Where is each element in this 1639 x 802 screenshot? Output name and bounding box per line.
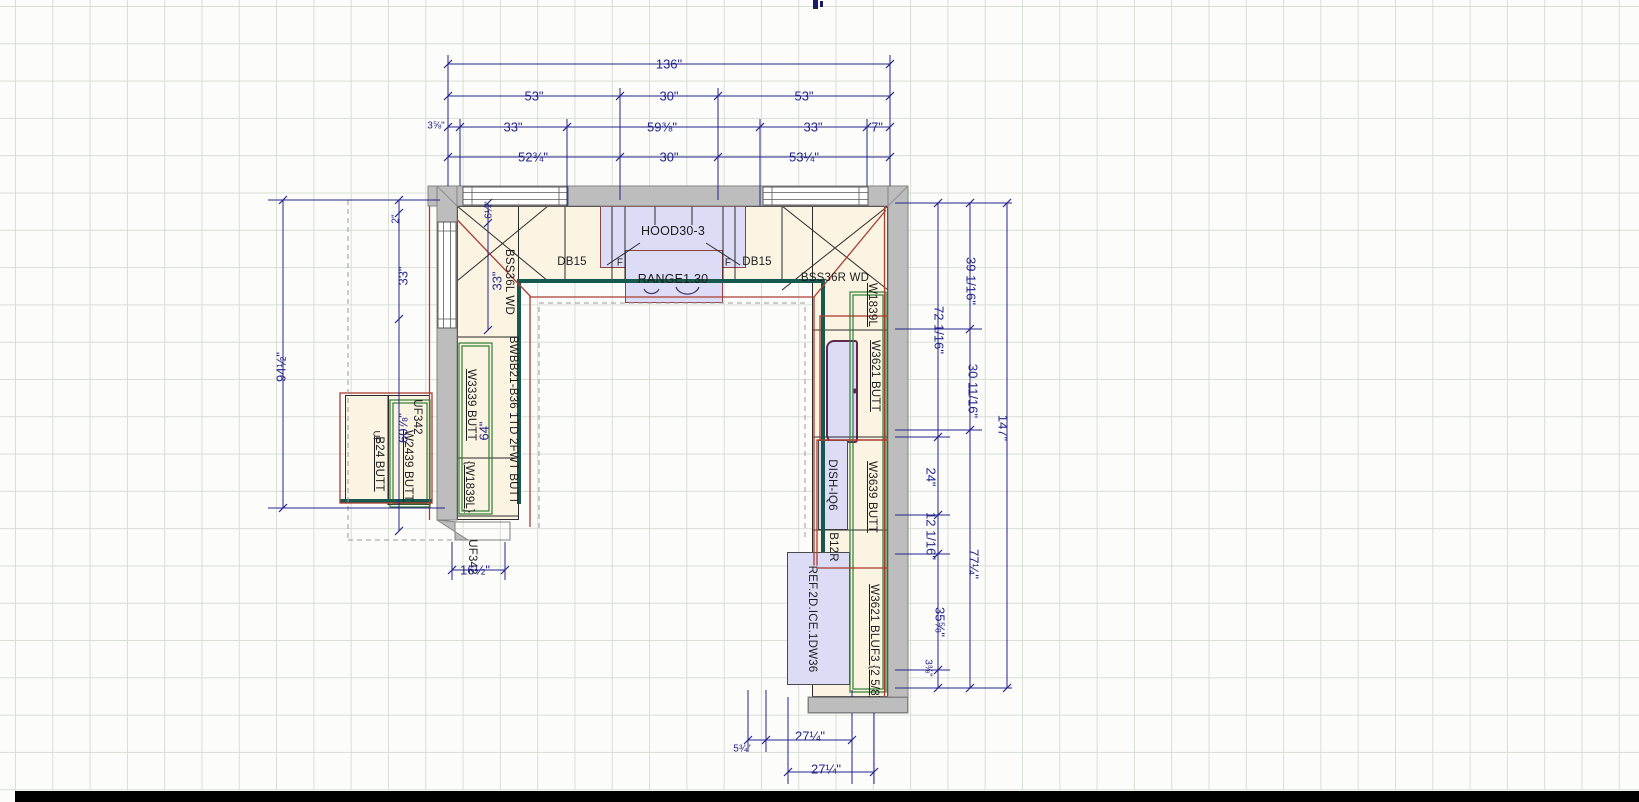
dim-top-33b: 33" [803,120,822,135]
dim-top-30a: 30" [659,89,678,104]
dim-top-53a: 53" [524,89,543,104]
cabinet-label-w3639[interactable]: W3639 BUTT [866,461,878,533]
dim-bottom-peninsula: 16½" [460,563,490,578]
dim-left-gap: 2" [391,214,402,223]
cabinet-label-db15-left[interactable]: DB15 [557,256,587,268]
dashed-lines [348,200,805,540]
dim-top-3-58: 3⅝" [427,121,444,132]
cabinet-label-bss36l[interactable]: BSS36L WD [503,249,515,315]
cabinet-label-filler-left[interactable]: F [617,258,623,269]
dim-bottom-offset: 5¾" [733,744,750,755]
dim-top-59-38: 59⅜" [647,120,677,135]
dim-right-72-116: 72 1/16" [932,306,947,354]
dim-top-33a: 33" [503,120,522,135]
cabinet-label-db15-right[interactable]: DB15 [742,256,772,268]
wall-bottom-right-cover [808,697,908,713]
dim-left-overall: 94½" [274,352,289,382]
wall-right [888,186,908,713]
dim-bottom-ref2: 27¼" [811,762,841,777]
dim-left-window: 33" [396,266,411,285]
dim-left-below: 60⅞" [396,413,411,443]
dim-right-39-116: 39 1/16" [964,257,979,305]
dim-right-35-58: 35⅝" [933,607,948,637]
cabinet-label-b12r[interactable]: B12R [827,532,839,562]
cabinet-label-filler-right[interactable]: F [725,258,731,269]
dim-top-30b: 30" [659,150,678,165]
dim-right-overall: 147" [996,415,1011,441]
window-top-right [763,187,868,205]
dim-right-24: 24" [924,467,939,486]
cabinet-label-w1839-right[interactable]: W1839L [866,283,878,327]
dim-left-33: 33" [490,271,505,290]
appliance-label-hood[interactable]: HOOD30-3 [641,224,705,238]
cabinet-label-w3621[interactable]: W3621 BUTT [869,340,881,412]
dim-top-7: 7" [871,120,883,135]
bottom-bar [15,791,1639,802]
dim-right-12-116: 12 1/16" [924,512,939,560]
window-top-left [463,187,568,205]
cabinet-label-bwbb[interactable]: BWBB21-B36 1TD 2FWT BUTT [507,336,519,504]
cabinet-label-bss36r[interactable]: BSS36R WD [801,272,869,284]
top-edge-artifact-2 [820,1,823,7]
dim-top-53-14: 53¼" [789,150,819,165]
dim-top-total: 136" [656,57,682,72]
wall-bottom-left [437,520,510,540]
cabinet-label-b24[interactable]: B24 BUTT [373,436,385,491]
cabinet-label-w3621-bluf3[interactable]: W3621 BLUF3 {2 5/8} [868,584,880,700]
range-burner-arcs [644,287,699,294]
appliance-label-range[interactable]: RANGE1.30 [638,272,709,286]
window-left [438,222,456,328]
appliance-label-refrigerator[interactable]: REF.2D.ICE.1DW36 [806,566,818,673]
cabinet-label-uf342-a[interactable]: UF342 [411,399,423,435]
top-edge-artifact [813,0,818,9]
design-canvas[interactable]: BSS36L WD DB15 F F DB15 BSS36R WD HOOD30… [0,0,1639,802]
dim-left-64: 64" [477,421,492,440]
dim-right-77-14: 77¼" [967,549,982,579]
appliance-label-dishwasher[interactable]: DISH-IQ6 [826,459,838,510]
cabinet-label-w3339[interactable]: W3339 BUTT [465,369,477,441]
dim-left-6-14: 6¼" [484,201,495,218]
dim-top-53b: 53" [794,89,813,104]
dim-right-30-1116: 30 11/16" [966,364,981,418]
cabinet-label-w1839-left[interactable]: {W1839L} [463,461,475,513]
dim-top-52-34: 52¾" [518,150,548,165]
dim-bottom-ref: 27¼" [795,729,825,744]
dim-right-3-38: 3⅜" [923,659,934,676]
